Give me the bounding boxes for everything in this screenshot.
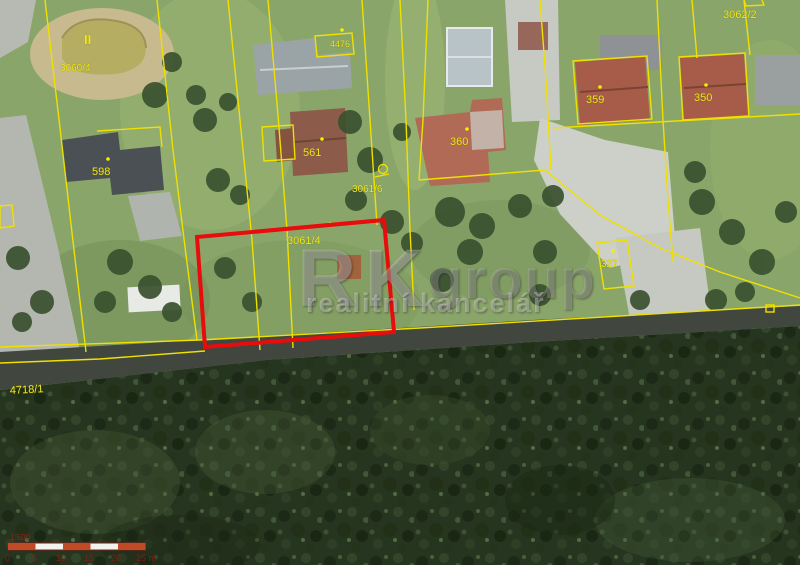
house-561-wing: [275, 128, 295, 162]
scale-ratio: 1:500: [10, 533, 31, 542]
aerial-cadastral-map[interactable]: II 3060/4 4476 598 561 3061/6 3061/4 360…: [0, 0, 800, 565]
scale-tick-5: 5: [32, 553, 37, 563]
label-parcel-pond: 3060/4: [60, 63, 91, 74]
label-road-4718-1: 4718/1: [10, 383, 44, 397]
label-parcel-3062-2: 3062/2: [723, 9, 757, 21]
label-parcel-3061-6: 3061/6: [352, 184, 383, 195]
watermark-red-square: [337, 255, 361, 279]
label-house-598: 598: [92, 166, 110, 178]
scale-tick-20: 20: [111, 553, 121, 563]
label-house-360: 360: [450, 136, 468, 148]
label-parcel-top-mid: 4476: [330, 39, 350, 49]
label-house-359: 359: [586, 94, 604, 106]
driveway-top: [505, 0, 560, 122]
label-house-561: 561: [303, 147, 321, 159]
label-pond-mark: II: [84, 32, 91, 47]
map-canvas: II 3060/4 4476 598 561 3061/6 3061/4 360…: [0, 0, 800, 565]
label-parcel-3061-4: 3061/4: [287, 235, 321, 247]
shed-topright: [755, 55, 800, 105]
scale-tick-0: 0: [5, 553, 10, 563]
scale-tick-25: 25 m: [136, 553, 156, 563]
scale-tick-15: 15: [84, 553, 94, 563]
scale-tick-10: 10: [56, 553, 66, 563]
label-parcel-327: 327: [601, 259, 618, 270]
label-house-350: 350: [694, 92, 712, 104]
